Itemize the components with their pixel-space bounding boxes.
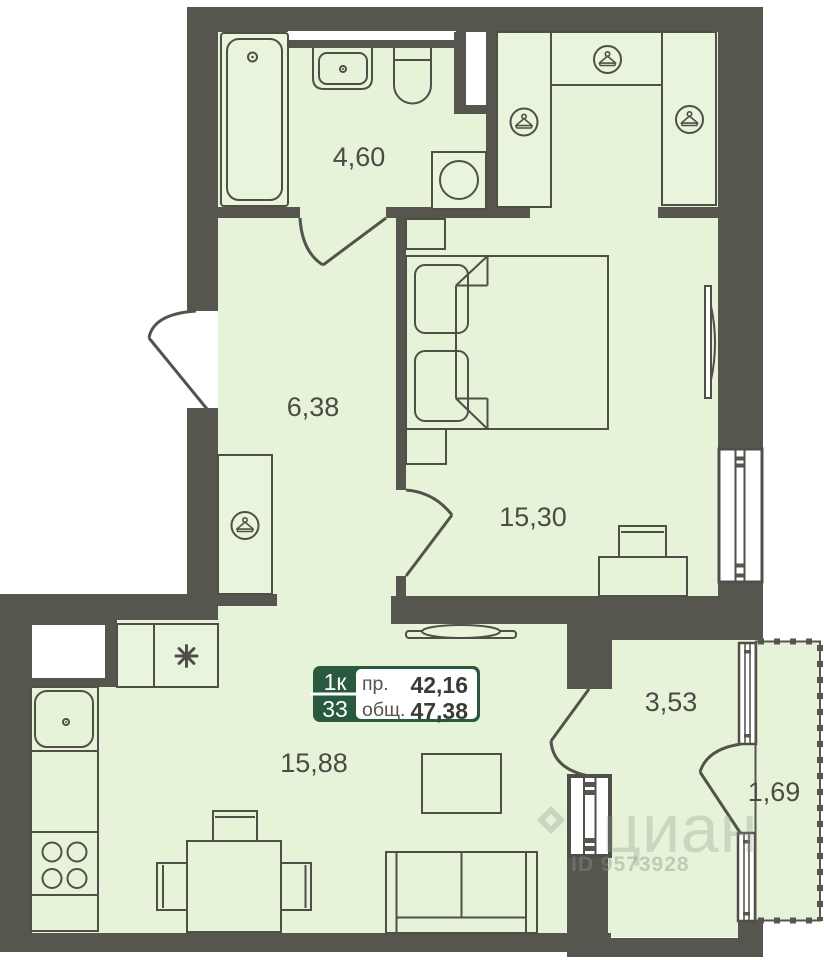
- svg-text:42,16: 42,16: [410, 672, 468, 698]
- svg-text:33: 33: [322, 696, 348, 722]
- svg-text:1,69: 1,69: [748, 777, 801, 807]
- svg-text:15,88: 15,88: [280, 748, 348, 778]
- svg-text:4,60: 4,60: [333, 142, 386, 172]
- svg-text:ID 9573928: ID 9573928: [571, 853, 690, 876]
- svg-text:15,30: 15,30: [499, 502, 567, 532]
- svg-text:1к: 1к: [324, 669, 348, 695]
- svg-text:пр.: пр.: [362, 673, 389, 695]
- svg-text:6,38: 6,38: [287, 392, 340, 422]
- svg-text:3,53: 3,53: [645, 687, 698, 717]
- svg-text:47,38: 47,38: [410, 698, 468, 724]
- svg-text:общ.: общ.: [362, 699, 405, 721]
